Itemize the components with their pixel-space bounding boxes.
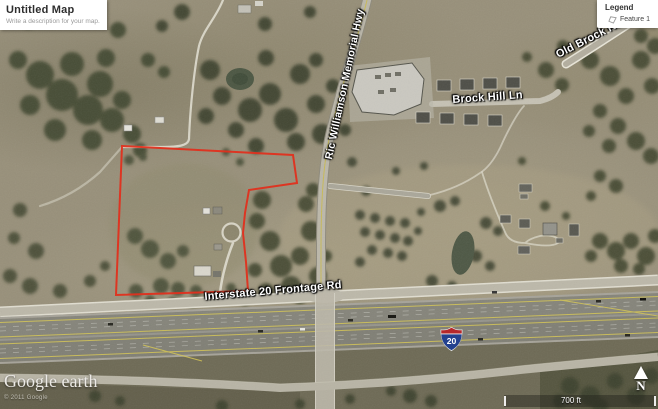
satellite-render <box>0 0 658 409</box>
polygon-outline-icon <box>608 15 617 24</box>
legend-panel: Legend Feature 1 <box>597 0 658 28</box>
interstate-20-shield-icon: 20 <box>440 326 463 352</box>
map-title[interactable]: Untitled Map <box>6 4 102 16</box>
satellite-imagery[interactable] <box>0 0 658 409</box>
legend-title: Legend <box>605 3 654 12</box>
shield-route-number: 20 <box>447 336 457 346</box>
google-earth-map-view: Ric Williamson Memorial Hwy Brock Hill L… <box>0 0 658 409</box>
scale-tick-right <box>654 396 656 406</box>
scale-bar: 700 ft <box>504 395 656 407</box>
map-title-card[interactable]: Untitled Map Write a description for you… <box>0 0 107 30</box>
imagery-grain <box>0 0 658 409</box>
legend-item-label: Feature 1 <box>620 16 650 23</box>
legend-item-feature-1[interactable]: Feature 1 <box>608 15 654 24</box>
north-arrow-icon <box>634 366 648 379</box>
map-description[interactable]: Write a description for your map. <box>6 18 102 25</box>
north-compass: N <box>630 366 652 393</box>
north-label: N <box>630 379 652 393</box>
scale-label: 700 ft <box>504 396 638 405</box>
